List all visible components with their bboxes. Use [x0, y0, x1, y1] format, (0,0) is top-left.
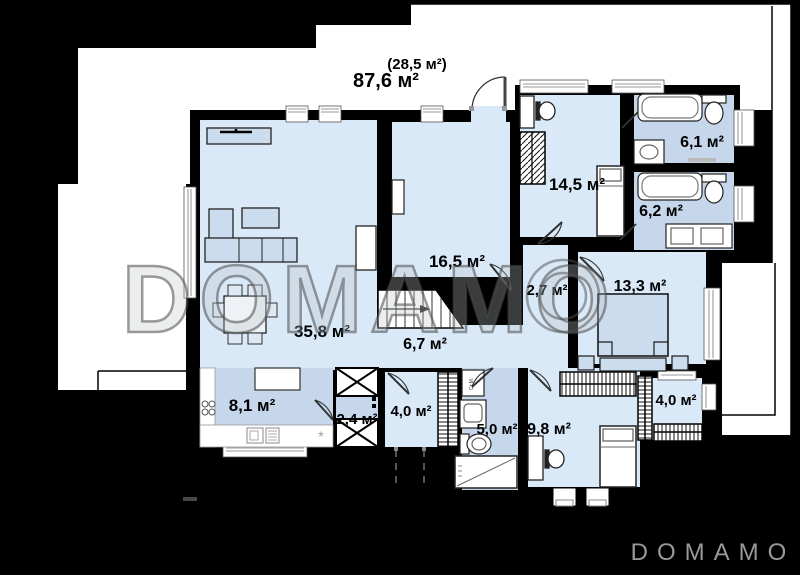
label-bedroom-133: 13,3 м²: [614, 278, 667, 295]
desk-165: [392, 180, 404, 214]
bed-133-bench: [600, 358, 666, 371]
closet-40r-bottom: [654, 424, 702, 441]
floor-plan-svg: *: [0, 0, 800, 575]
chair-seat-98: [548, 450, 564, 468]
dash-marker-1: [394, 447, 398, 451]
brand-logo: DOMAMO: [631, 539, 796, 566]
nightstand-right: [672, 356, 688, 370]
toilet-62-bowl: [705, 181, 723, 203]
terrace-right-lower: [722, 263, 791, 435]
closet-40r-left: [638, 376, 652, 440]
sink-61: [634, 140, 664, 164]
window-living-top-1: [286, 106, 308, 122]
label-total-area: 87,6 м²: [353, 70, 419, 92]
shelf-61: [688, 158, 716, 162]
label-bath-61: 6,1 м²: [680, 134, 724, 151]
label-bath-62: 6,2 м²: [639, 203, 683, 220]
desk-98: [528, 436, 543, 480]
window-145-top: [520, 80, 588, 93]
dishwasher: [247, 428, 263, 443]
label-kitchen: 8,1 м²: [229, 396, 276, 415]
window-wardrobe-right-top: [658, 371, 696, 380]
floor-plan-page: *: [0, 0, 800, 575]
desk-145: [520, 96, 534, 128]
fridge-star-icon: *: [318, 428, 324, 444]
entrance-jamb-right: [502, 106, 507, 111]
label-bedroom-145: 14,5 м²: [549, 175, 605, 194]
porch-post-1: [553, 488, 576, 506]
entrance-jamb-left: [469, 106, 474, 111]
toilet-61-bowl: [705, 102, 723, 124]
window-165-top: [421, 106, 443, 122]
tv-unit: [207, 128, 271, 144]
shelf-bracket-2: [372, 404, 376, 408]
window-living-top-2: [319, 106, 341, 122]
oven-vents: [266, 428, 279, 443]
window-62-right: [734, 186, 754, 222]
closet-145: [520, 132, 545, 184]
label-bath-small: 5,0 м²: [476, 421, 517, 438]
pantry-shelf-top: [336, 368, 378, 396]
center-watermark: DOMAMO: [122, 246, 618, 353]
closet-wardrobe-left: [438, 372, 458, 447]
kitchen-island: [255, 368, 300, 390]
label-wardrobe-right: 4,0 м²: [655, 392, 696, 409]
shelf-bracket-1: [372, 397, 376, 401]
window-133-right: [704, 288, 720, 360]
entrance-opening: [471, 106, 506, 122]
small-print-mark: [183, 497, 197, 501]
label-wardrobe-left: 4,0 м²: [390, 403, 431, 420]
window-40r-right: [702, 384, 716, 410]
coffee-table: [242, 208, 279, 228]
closet-98-top: [560, 372, 636, 396]
dash-marker-2: [422, 447, 426, 451]
nightstand-left: [578, 356, 594, 370]
label-bedroom-98: 9,8 м²: [527, 421, 571, 438]
porch-post-2: [586, 488, 609, 506]
chair-seat-145: [539, 102, 555, 120]
window-61-top: [612, 80, 664, 93]
label-pantry: 2,4 м²: [336, 411, 377, 428]
window-61-right: [734, 110, 754, 146]
bed-98: [600, 426, 636, 487]
